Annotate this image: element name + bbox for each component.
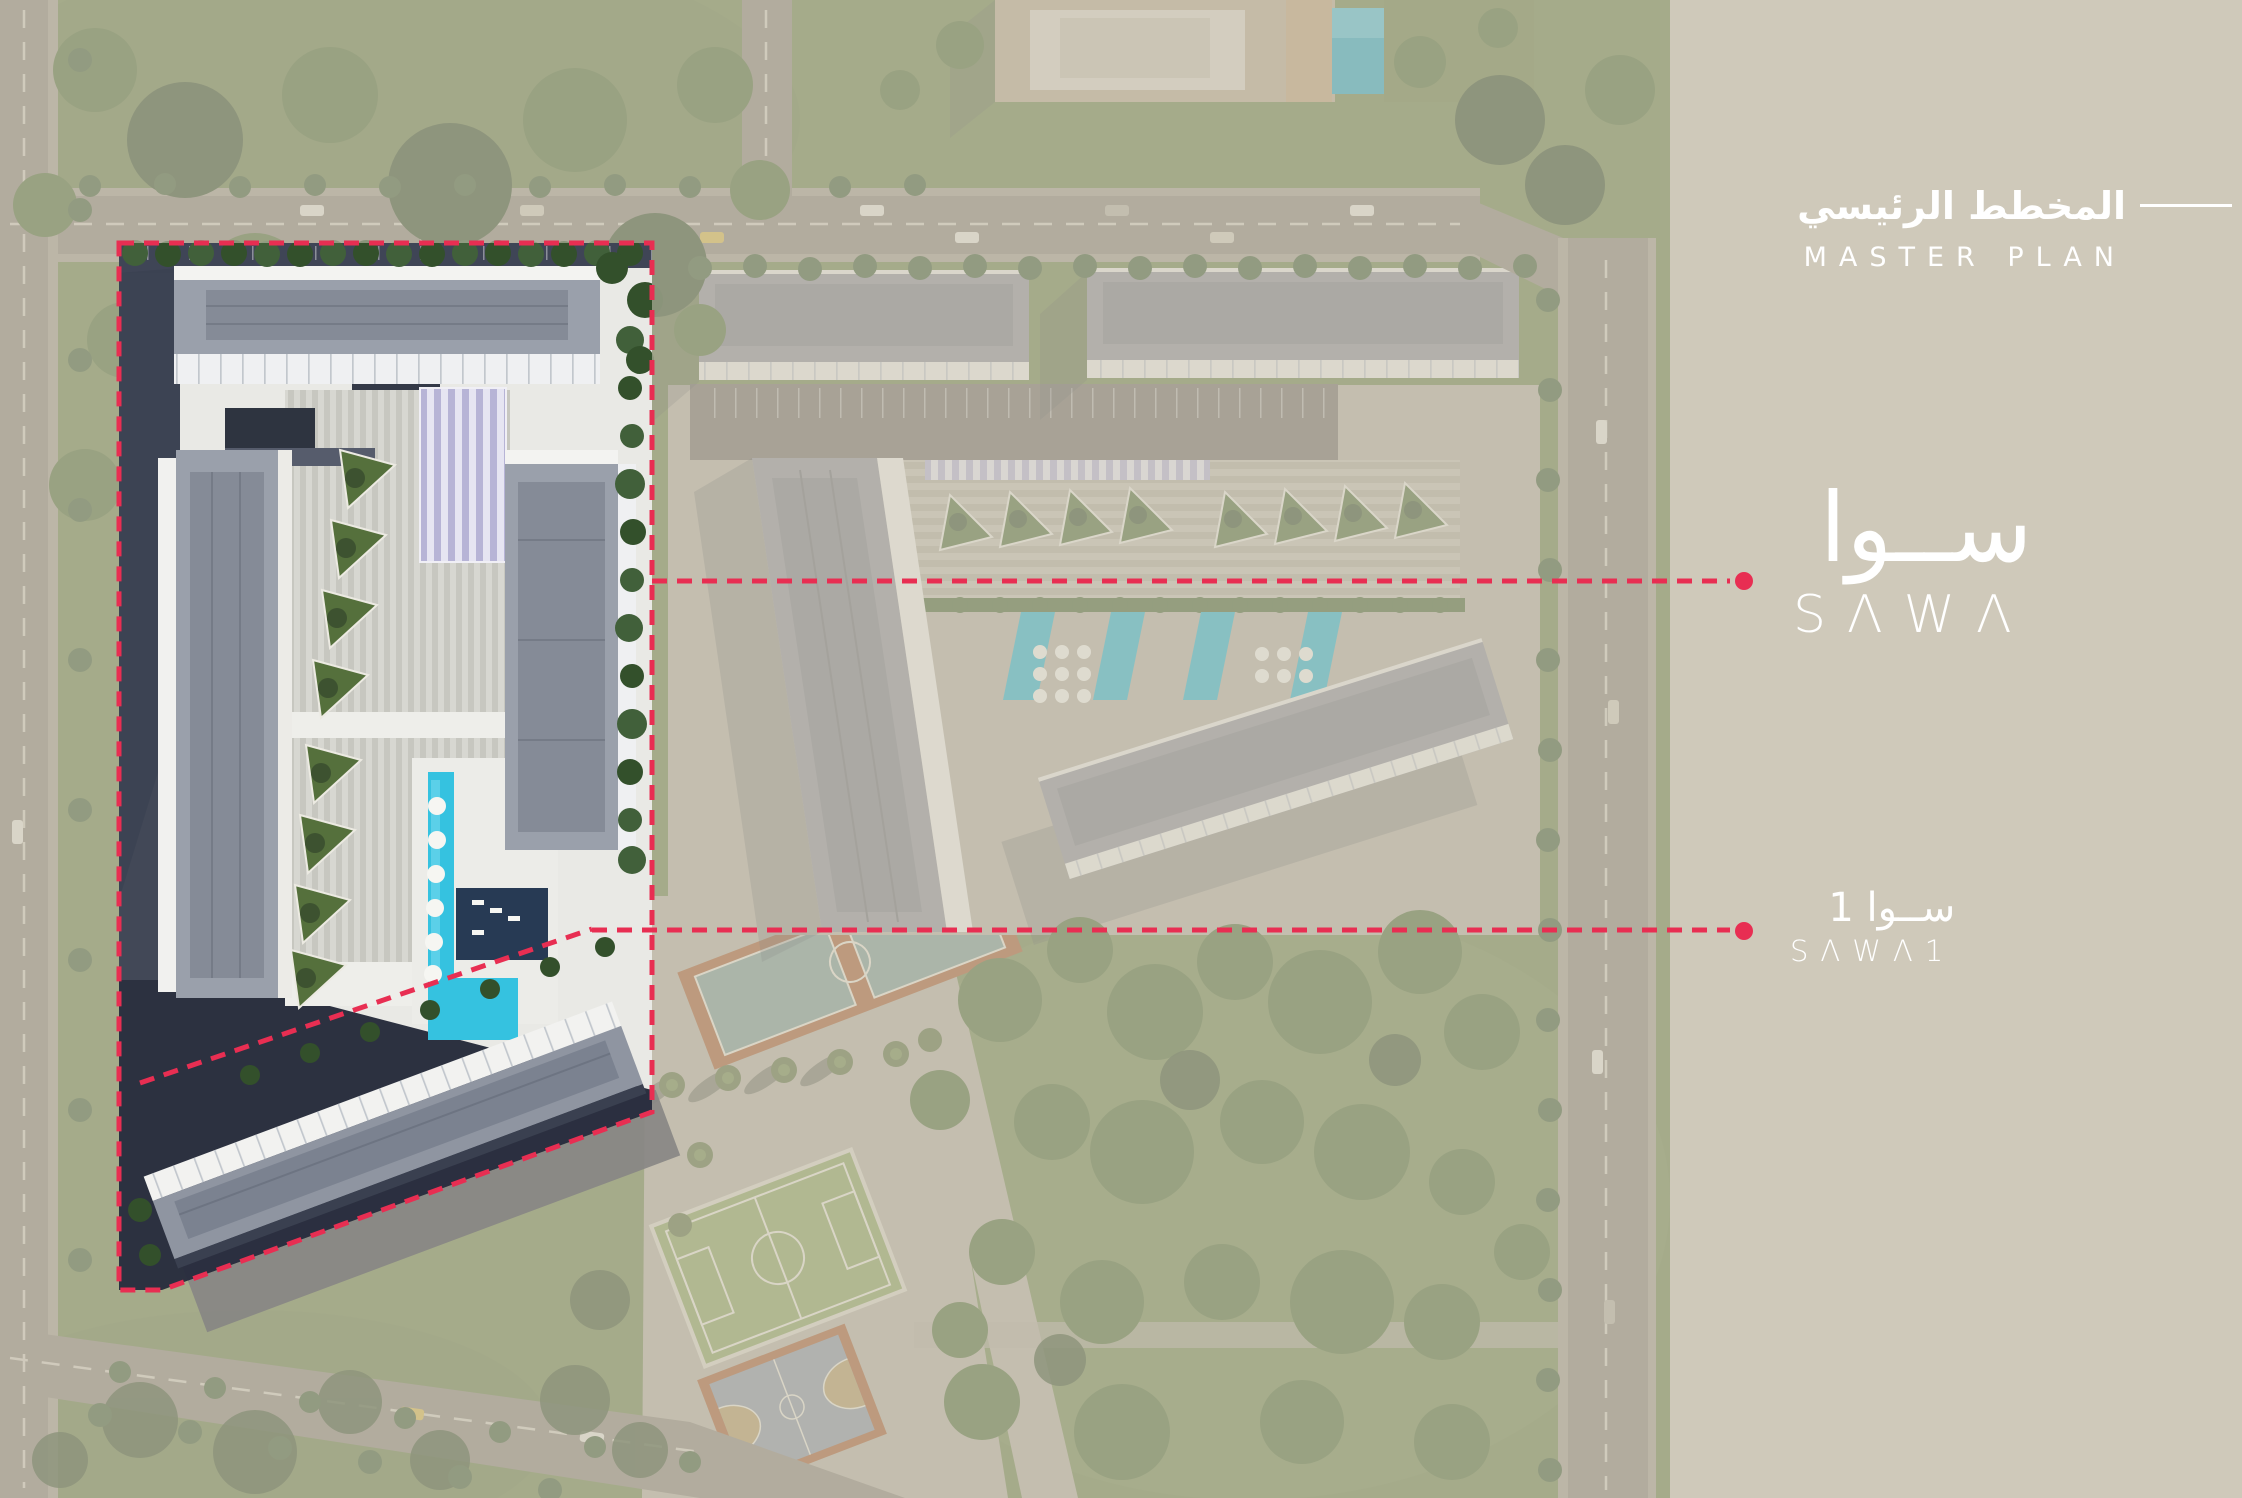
title-rule-line bbox=[2140, 204, 2232, 207]
sawa1-label-arabic: ســوا 1 bbox=[1790, 886, 1955, 930]
master-plan-title-arabic: المخطط الرئيسي bbox=[1797, 184, 2126, 230]
sawa1-label-english: SΛWΛ1 bbox=[1790, 934, 1955, 968]
leader-dot-sawa1 bbox=[1735, 922, 1753, 940]
sawa-logo-english: SΛWΛ bbox=[1793, 585, 2033, 645]
leader-dot-sawa bbox=[1735, 572, 1753, 590]
master-plan-title-english: MASTER PLAN bbox=[1797, 242, 2126, 273]
sawa-logo-block: ســوا SΛWΛ bbox=[1793, 478, 2033, 645]
sawa1-label-block: ســوا 1 SΛWΛ1 bbox=[1790, 886, 1955, 968]
sawa-logo-arabic: ســوا bbox=[1793, 478, 2033, 579]
master-plan-page: المخطط الرئيسي MASTER PLAN ســوا SΛWΛ سـ… bbox=[0, 0, 2242, 1498]
master-plan-title-block: المخطط الرئيسي MASTER PLAN bbox=[1797, 184, 2126, 273]
